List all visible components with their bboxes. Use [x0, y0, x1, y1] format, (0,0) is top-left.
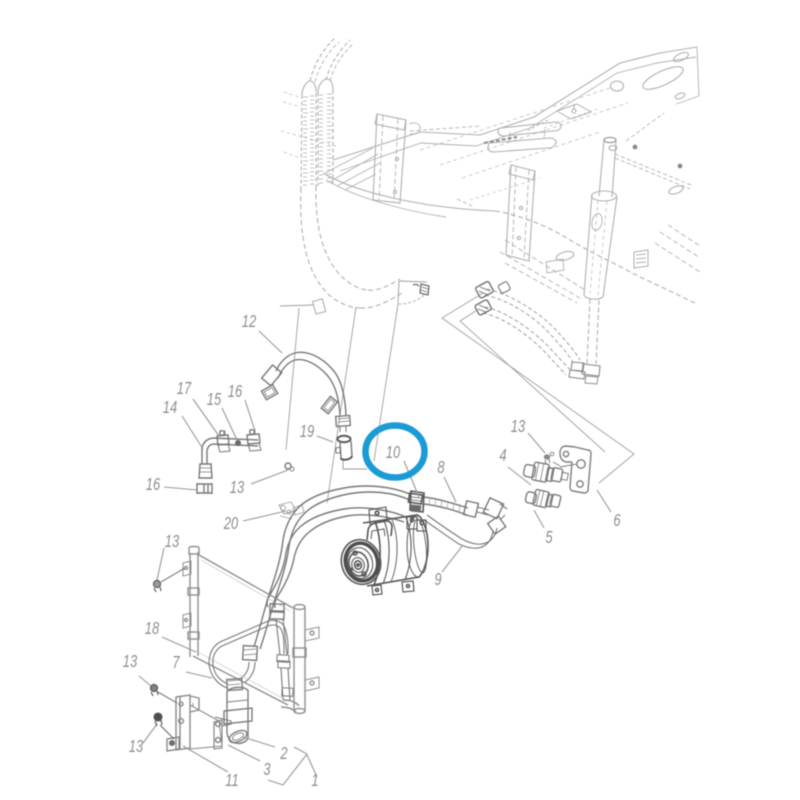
svg-text:13: 13	[230, 478, 245, 497]
svg-text:13: 13	[129, 737, 144, 756]
svg-text:10: 10	[386, 443, 401, 462]
svg-text:13: 13	[123, 652, 138, 671]
svg-text:13: 13	[511, 417, 526, 436]
svg-text:3: 3	[263, 760, 271, 779]
svg-text:5: 5	[545, 528, 553, 547]
svg-text:12: 12	[242, 312, 257, 331]
svg-text:19: 19	[300, 422, 315, 441]
svg-text:1: 1	[311, 771, 318, 790]
svg-text:7: 7	[172, 653, 180, 672]
svg-text:18: 18	[145, 619, 160, 638]
svg-text:6: 6	[613, 511, 621, 530]
svg-text:17: 17	[177, 379, 193, 398]
svg-text:11: 11	[225, 771, 238, 790]
svg-text:16: 16	[146, 475, 161, 494]
svg-text:13: 13	[165, 532, 180, 551]
svg-text:2: 2	[280, 744, 288, 763]
svg-text:14: 14	[163, 398, 177, 417]
svg-text:4: 4	[499, 446, 506, 465]
svg-text:15: 15	[207, 390, 222, 409]
svg-text:16: 16	[228, 382, 243, 401]
svg-text:9: 9	[434, 570, 442, 589]
svg-text:20: 20	[223, 514, 239, 533]
svg-text:8: 8	[437, 458, 445, 477]
